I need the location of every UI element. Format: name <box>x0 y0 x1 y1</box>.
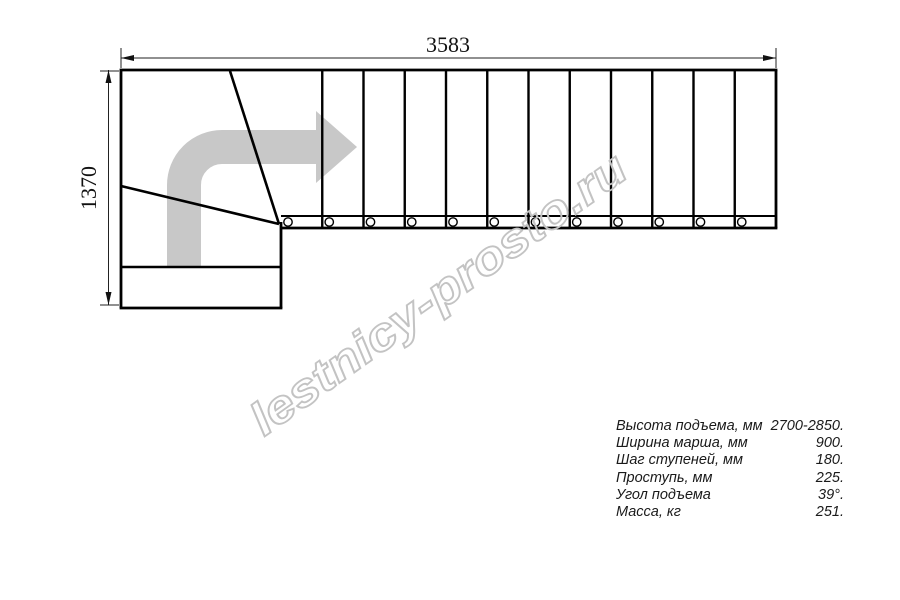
bolt-circle <box>408 218 416 226</box>
spec-value: 2700-2850. <box>771 418 844 435</box>
height-dimension-label: 1370 <box>76 166 101 210</box>
stair-plan-page: 3583 1370 lestnicy-prosto.ru Высота подъ… <box>0 0 900 600</box>
direction-arrow <box>184 111 357 267</box>
bolt-circle <box>325 218 333 226</box>
spec-row: Масса, кг 251. <box>616 504 844 521</box>
spec-label: Высота подъема, мм <box>616 418 763 435</box>
spec-row: Шаг ступеней, мм 180. <box>616 452 844 469</box>
spec-label: Проступь, мм <box>616 470 712 487</box>
spec-label: Ширина марша, мм <box>616 435 748 452</box>
bolt-circle <box>449 218 457 226</box>
spec-label: Угол подъема <box>616 487 711 504</box>
width-dimension-label: 3583 <box>426 32 470 57</box>
spec-value: 39°. <box>818 487 844 504</box>
bolt-circle <box>738 218 746 226</box>
dim-arrow-right-icon <box>763 55 776 61</box>
spec-value: 180. <box>816 452 844 469</box>
spec-row: Ширина марша, мм 900. <box>616 435 844 452</box>
bolt-circle <box>614 218 622 226</box>
spec-table: Высота подъема, мм 2700-2850. Ширина мар… <box>616 418 844 521</box>
dimension-width: 3583 <box>121 32 776 68</box>
spec-row: Угол подъема 39°. <box>616 487 844 504</box>
dim-arrow-down-icon <box>106 292 112 305</box>
dimension-height: 1370 <box>76 70 119 305</box>
bolt-circle <box>366 218 374 226</box>
spec-row: Проступь, мм 225. <box>616 470 844 487</box>
bolt-circle <box>284 218 292 226</box>
spec-value: 900. <box>816 435 844 452</box>
watermark-text: lestnicy-prosto.ru <box>240 141 637 445</box>
spec-label: Шаг ступеней, мм <box>616 452 743 469</box>
spec-value: 225. <box>816 470 844 487</box>
bolt-circle <box>696 218 704 226</box>
dim-arrow-up-icon <box>106 70 112 83</box>
spec-label: Масса, кг <box>616 504 681 521</box>
bolt-circle <box>655 218 663 226</box>
spec-row: Высота подъема, мм 2700-2850. <box>616 418 844 435</box>
dim-arrow-left-icon <box>121 55 134 61</box>
spec-value: 251. <box>816 504 844 521</box>
